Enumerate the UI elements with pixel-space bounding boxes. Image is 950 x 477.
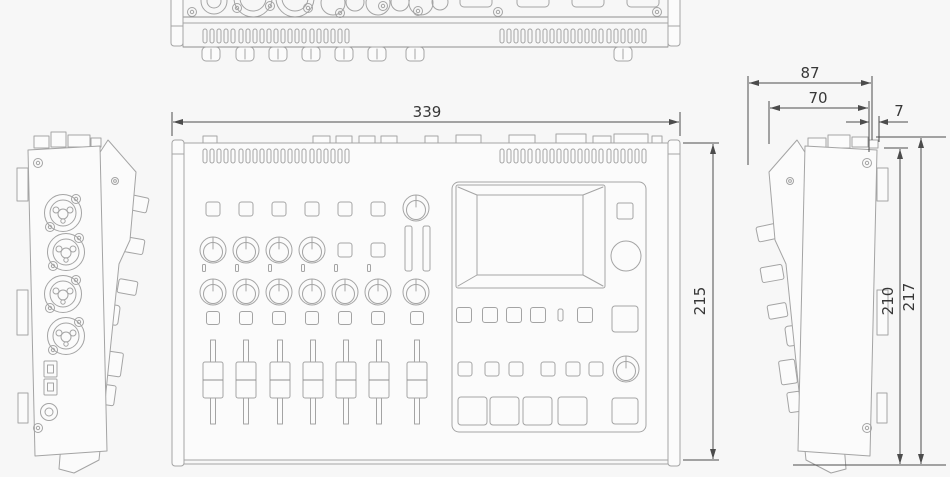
rear-vent-grid-left bbox=[203, 29, 349, 43]
rear-vent-grid-right bbox=[500, 29, 646, 43]
dim-339: 339 bbox=[172, 103, 680, 136]
dim-label-70: 70 bbox=[808, 89, 827, 107]
rear-connector-row bbox=[188, 0, 662, 18]
rear-port bbox=[627, 0, 659, 7]
dim-label-217: 217 bbox=[900, 283, 918, 312]
side-top-connector bbox=[51, 132, 66, 147]
rear-port bbox=[460, 0, 492, 7]
right-side-view bbox=[756, 135, 888, 473]
side-top-connector bbox=[34, 136, 49, 148]
dim-label-339: 339 bbox=[413, 103, 442, 121]
side-left-tab bbox=[17, 290, 28, 335]
rear-port bbox=[572, 0, 604, 7]
side-panel-face bbox=[798, 146, 877, 456]
rear-knob-silhouettes bbox=[202, 47, 632, 61]
dim-215: 215 bbox=[683, 143, 719, 460]
side-top-connector bbox=[869, 140, 878, 148]
plan-view bbox=[172, 134, 680, 466]
side-top-connector bbox=[828, 135, 850, 148]
side-left-tab bbox=[17, 168, 28, 201]
technical-drawing-svg: 339 215 87 70 bbox=[0, 0, 950, 477]
rear-port bbox=[517, 0, 549, 7]
dim-label-210: 210 bbox=[879, 287, 897, 316]
left-side-view bbox=[17, 132, 149, 473]
rear-view bbox=[171, 0, 680, 61]
side-top-connector bbox=[852, 137, 868, 147]
dim-label-87: 87 bbox=[800, 64, 819, 82]
dim-label-7: 7 bbox=[894, 102, 904, 120]
mixer-dimension-drawing: 339 215 87 70 bbox=[0, 0, 950, 477]
plan-right-end-cap bbox=[668, 140, 680, 466]
rear-body bbox=[171, 0, 680, 47]
rear-left-end-cap bbox=[171, 0, 183, 46]
rear-right-end-cap bbox=[668, 0, 680, 46]
plan-left-end-cap bbox=[172, 140, 184, 466]
side-top-connector bbox=[68, 135, 90, 147]
side-left-tab bbox=[18, 393, 28, 423]
side-right-tab bbox=[877, 393, 887, 423]
side-right-tab bbox=[877, 168, 888, 201]
dim-label-215: 215 bbox=[691, 287, 709, 316]
